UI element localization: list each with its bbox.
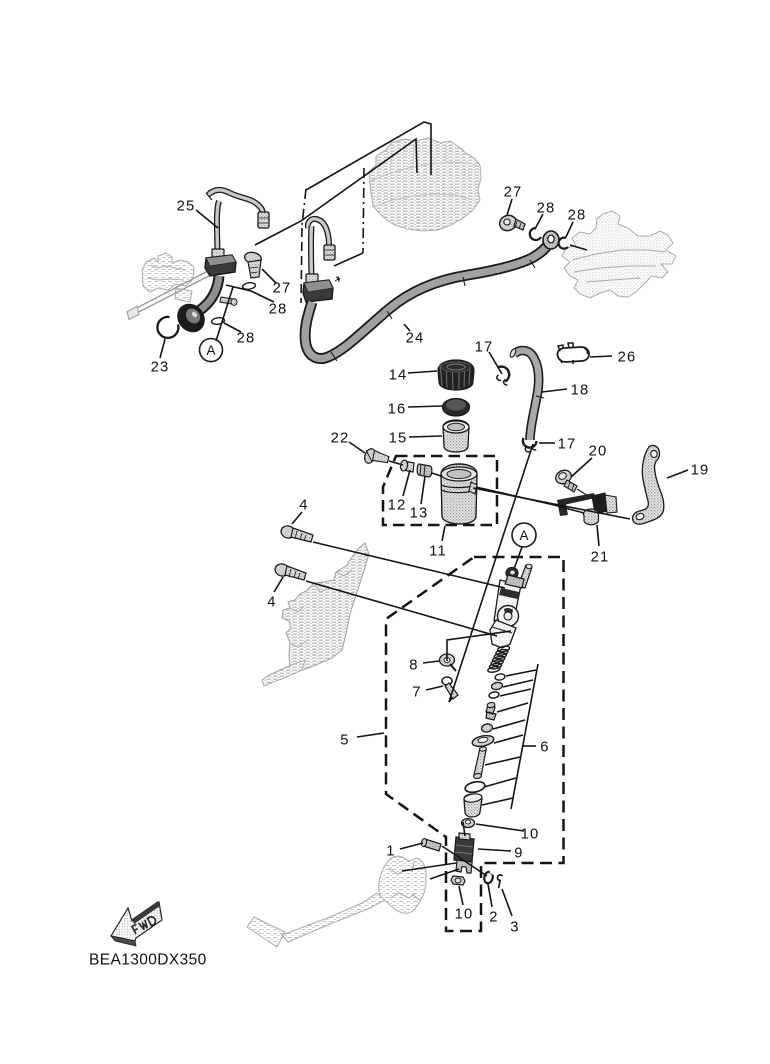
svg-text:11: 11: [429, 543, 447, 559]
svg-text:28: 28: [537, 200, 556, 216]
svg-text:19: 19: [691, 462, 710, 478]
svg-text:3: 3: [510, 919, 519, 935]
svg-text:27: 27: [273, 280, 292, 296]
svg-text:6: 6: [540, 739, 549, 755]
svg-text:4: 4: [299, 497, 308, 513]
svg-text:23: 23: [151, 359, 170, 375]
svg-text:20: 20: [589, 443, 608, 459]
svg-text:5: 5: [340, 732, 349, 748]
svg-text:9: 9: [514, 845, 523, 861]
svg-text:A: A: [519, 528, 528, 543]
svg-text:8: 8: [409, 657, 418, 673]
svg-text:18: 18: [571, 382, 590, 398]
svg-text:28: 28: [269, 301, 288, 317]
svg-text:13: 13: [410, 505, 429, 521]
svg-text:16: 16: [388, 401, 407, 417]
svg-text:10: 10: [521, 826, 540, 842]
svg-text:1: 1: [386, 843, 395, 859]
svg-text:12: 12: [388, 497, 407, 513]
svg-text:27: 27: [504, 184, 523, 200]
svg-text:14: 14: [389, 367, 408, 383]
svg-text:A: A: [206, 343, 215, 358]
svg-text:4: 4: [267, 594, 276, 610]
svg-text:26: 26: [618, 349, 637, 365]
svg-text:17: 17: [475, 339, 494, 355]
svg-text:2: 2: [489, 909, 498, 925]
svg-text:21: 21: [591, 549, 610, 565]
svg-text:7: 7: [412, 684, 421, 700]
svg-text:15: 15: [389, 430, 408, 446]
svg-text:22: 22: [331, 430, 350, 446]
svg-text:24: 24: [406, 330, 425, 346]
svg-text:BEA1300DX350: BEA1300DX350: [89, 952, 207, 969]
svg-text:28: 28: [237, 330, 256, 346]
svg-text:25: 25: [177, 198, 196, 214]
svg-text:28: 28: [568, 207, 587, 223]
svg-text:10: 10: [455, 906, 474, 922]
svg-text:17: 17: [558, 436, 577, 452]
